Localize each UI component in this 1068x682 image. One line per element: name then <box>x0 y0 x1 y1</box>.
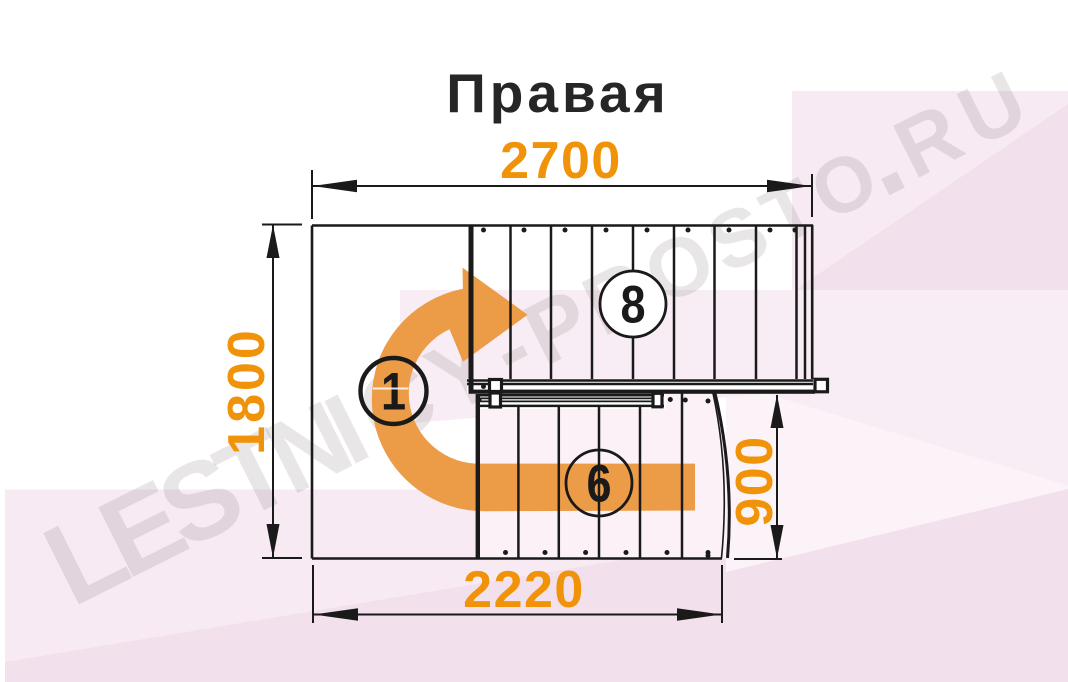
svg-text:2220: 2220 <box>463 561 585 619</box>
svg-text:Правая: Правая <box>446 62 669 124</box>
svg-text:900: 900 <box>726 435 784 526</box>
svg-text:1800: 1800 <box>218 327 276 455</box>
svg-text:6: 6 <box>586 454 611 513</box>
svg-text:1: 1 <box>381 362 406 421</box>
svg-text:8: 8 <box>620 275 645 334</box>
svg-text:2700: 2700 <box>500 132 622 190</box>
